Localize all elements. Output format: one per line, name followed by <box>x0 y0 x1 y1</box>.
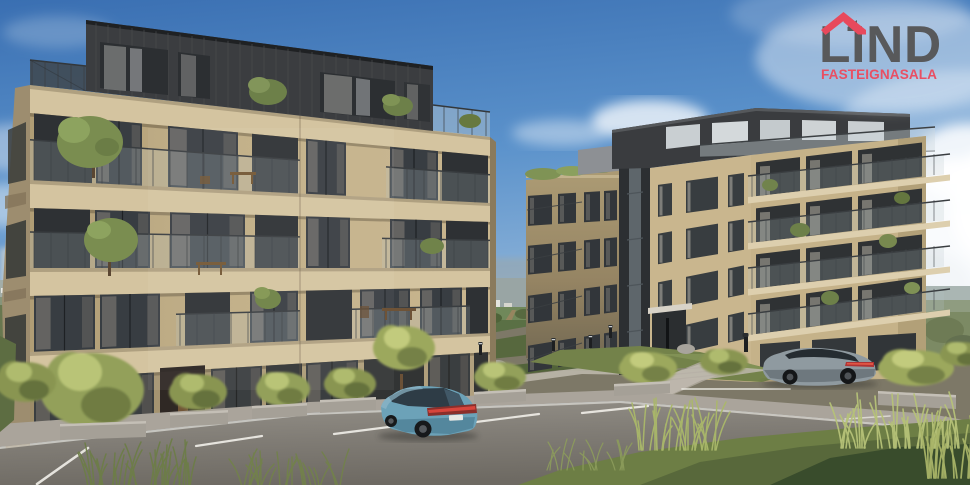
svg-text:FASTEIGNASALA: FASTEIGNASALA <box>821 67 937 82</box>
